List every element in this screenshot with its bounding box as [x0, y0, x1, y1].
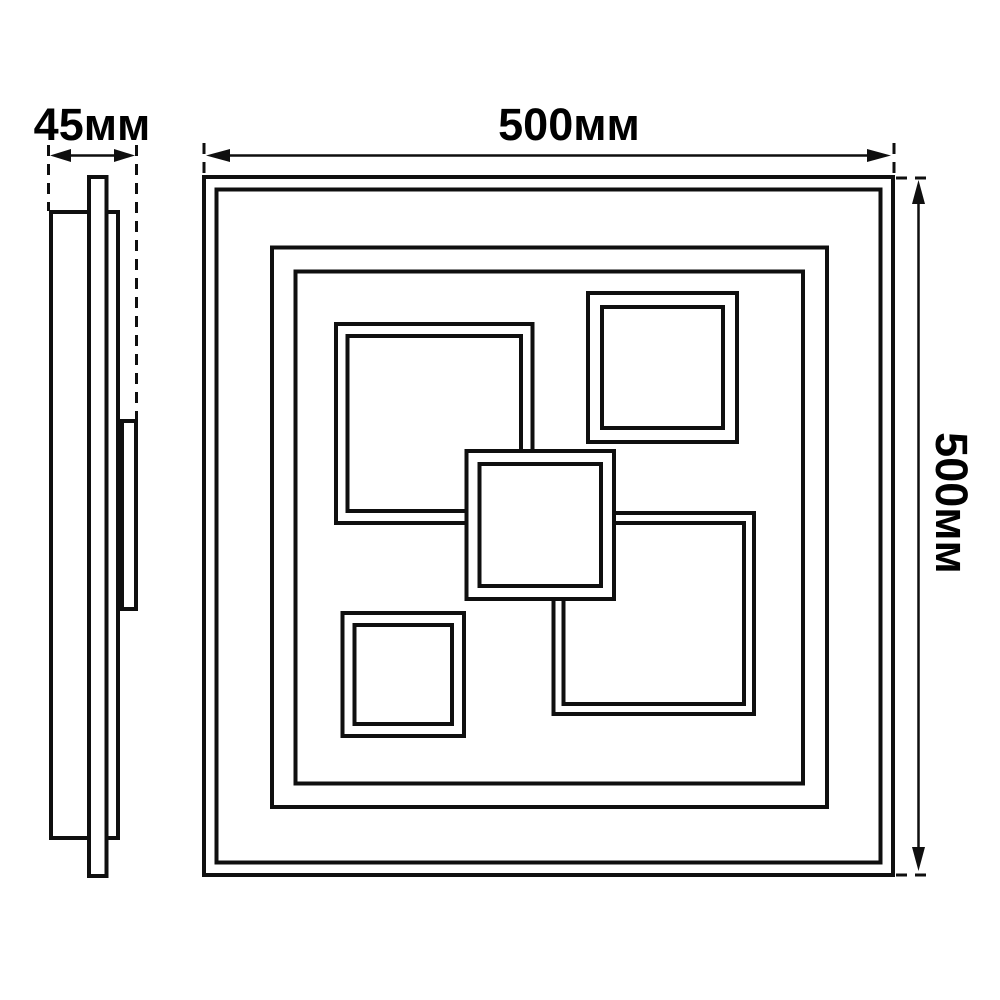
front-view: 500мм 500мм	[204, 99, 977, 875]
square-center	[467, 451, 615, 599]
height-arrowhead-bottom-icon	[912, 847, 925, 871]
depth-arrowhead-left-icon	[50, 149, 71, 162]
square-center-outer-border	[467, 451, 615, 599]
square-top-right	[588, 293, 737, 442]
width-dimension: 500мм	[204, 99, 894, 176]
width-arrowhead-right-icon	[867, 149, 891, 162]
width-dimension-label: 500мм	[498, 99, 640, 150]
square-bottom-left-outer-border	[343, 613, 465, 736]
side-view: 45мм	[34, 99, 151, 876]
width-arrowhead-left-icon	[206, 149, 230, 162]
square-bottom-left	[343, 613, 465, 736]
side-profile	[51, 177, 136, 876]
square-top-right-outer-border	[588, 293, 737, 442]
ceiling-light-dimension-drawing: 45мм	[0, 0, 1000, 1000]
depth-dimension-label: 45мм	[34, 99, 151, 150]
height-arrowhead-top-icon	[912, 180, 925, 204]
side-mounting-plate	[89, 177, 107, 876]
side-center-protrusion	[122, 421, 136, 609]
height-dimension-label: 500мм	[926, 432, 977, 574]
height-dimension: 500мм	[896, 178, 977, 875]
depth-arrowhead-right-icon	[114, 149, 135, 162]
technical-drawing-page: 45мм	[0, 0, 1000, 1000]
